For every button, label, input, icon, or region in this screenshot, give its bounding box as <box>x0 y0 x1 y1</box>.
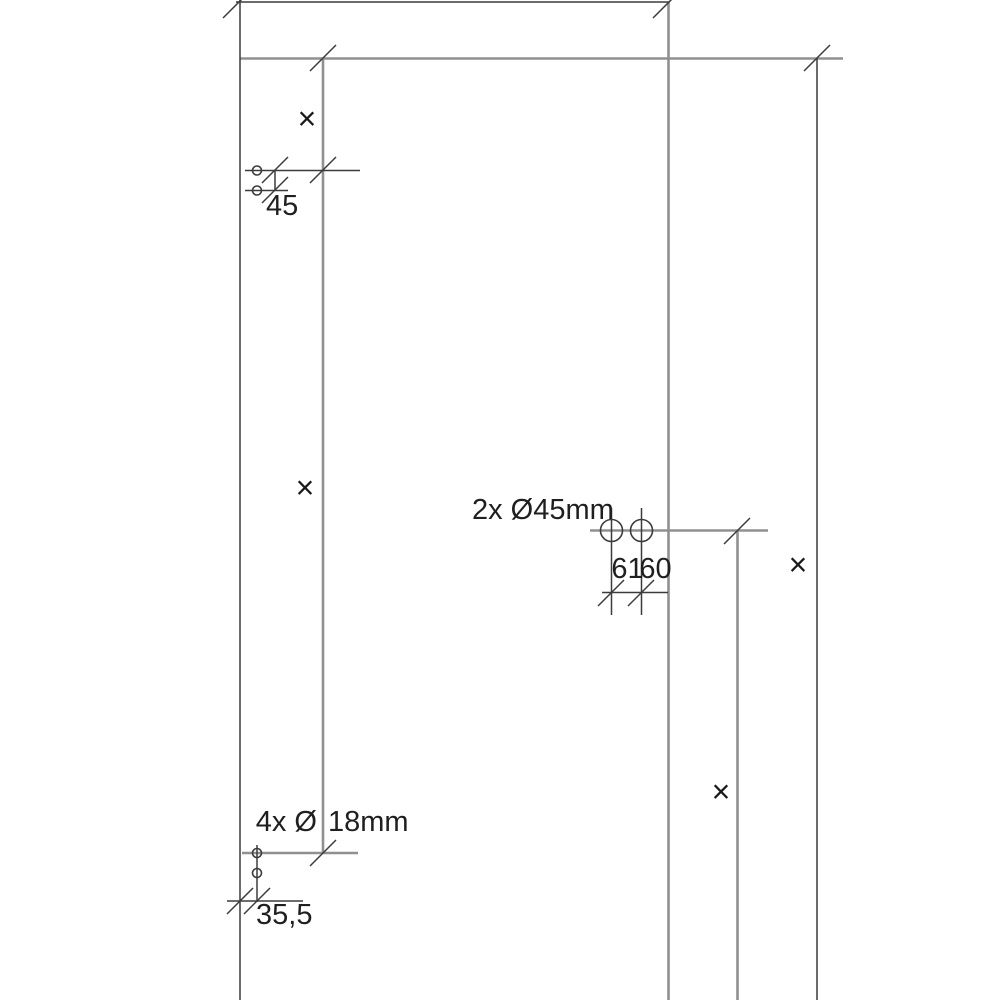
dimension-labels: 45 2x Ø45mm 61 60 4x Ø 18mm 35,5 <box>256 190 672 931</box>
technical-drawing: × × × × 45 2x Ø45mm 61 60 4x Ø 18mm 35,5 <box>0 0 1000 1000</box>
dim-35-5-label: 35,5 <box>256 899 312 931</box>
x-marker: × <box>789 547 808 583</box>
x-marker: × <box>712 774 731 810</box>
dim-60-label: 60 <box>639 553 671 585</box>
tick-marks <box>223 0 830 914</box>
drawing-svg: × × × × 45 2x Ø45mm 61 60 4x Ø 18mm 35,5 <box>0 0 1000 1000</box>
dim-45-label: 45 <box>266 190 298 222</box>
large-holes-label: 2x Ø45mm <box>472 494 614 526</box>
small-holes-label-suffix: 18mm <box>328 806 409 838</box>
small-holes-label-prefix: 4x Ø <box>256 806 317 838</box>
surface-markers: × × × × <box>296 101 808 810</box>
x-marker: × <box>296 470 315 506</box>
x-marker: × <box>298 101 317 137</box>
